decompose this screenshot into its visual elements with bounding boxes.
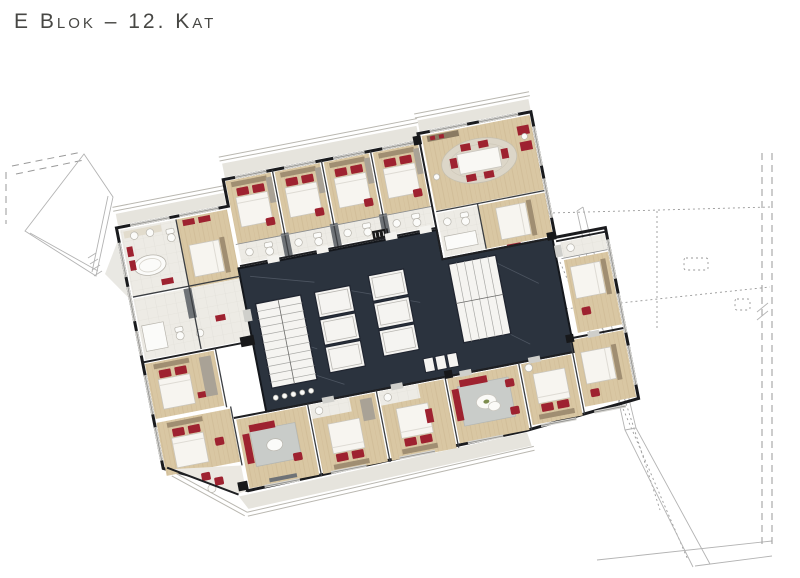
chair (201, 472, 211, 482)
floor-plan-page: E Blok – 12. Kat (0, 0, 800, 578)
chair (505, 378, 515, 388)
chair (314, 207, 324, 217)
chair (364, 198, 374, 208)
chair (510, 405, 520, 415)
unit-top-right (422, 115, 554, 261)
chair (214, 476, 224, 486)
context-outline-left (6, 152, 113, 276)
building-plan (86, 82, 646, 534)
floor-plan-canvas (0, 0, 800, 578)
chair (413, 188, 423, 198)
chair (265, 217, 275, 227)
unit-top-left (120, 210, 252, 360)
chair (214, 436, 224, 446)
chair (293, 452, 303, 462)
chair (581, 306, 591, 316)
chair (590, 388, 600, 398)
units-left-edge (145, 350, 246, 507)
unit-right-middle (560, 234, 622, 333)
